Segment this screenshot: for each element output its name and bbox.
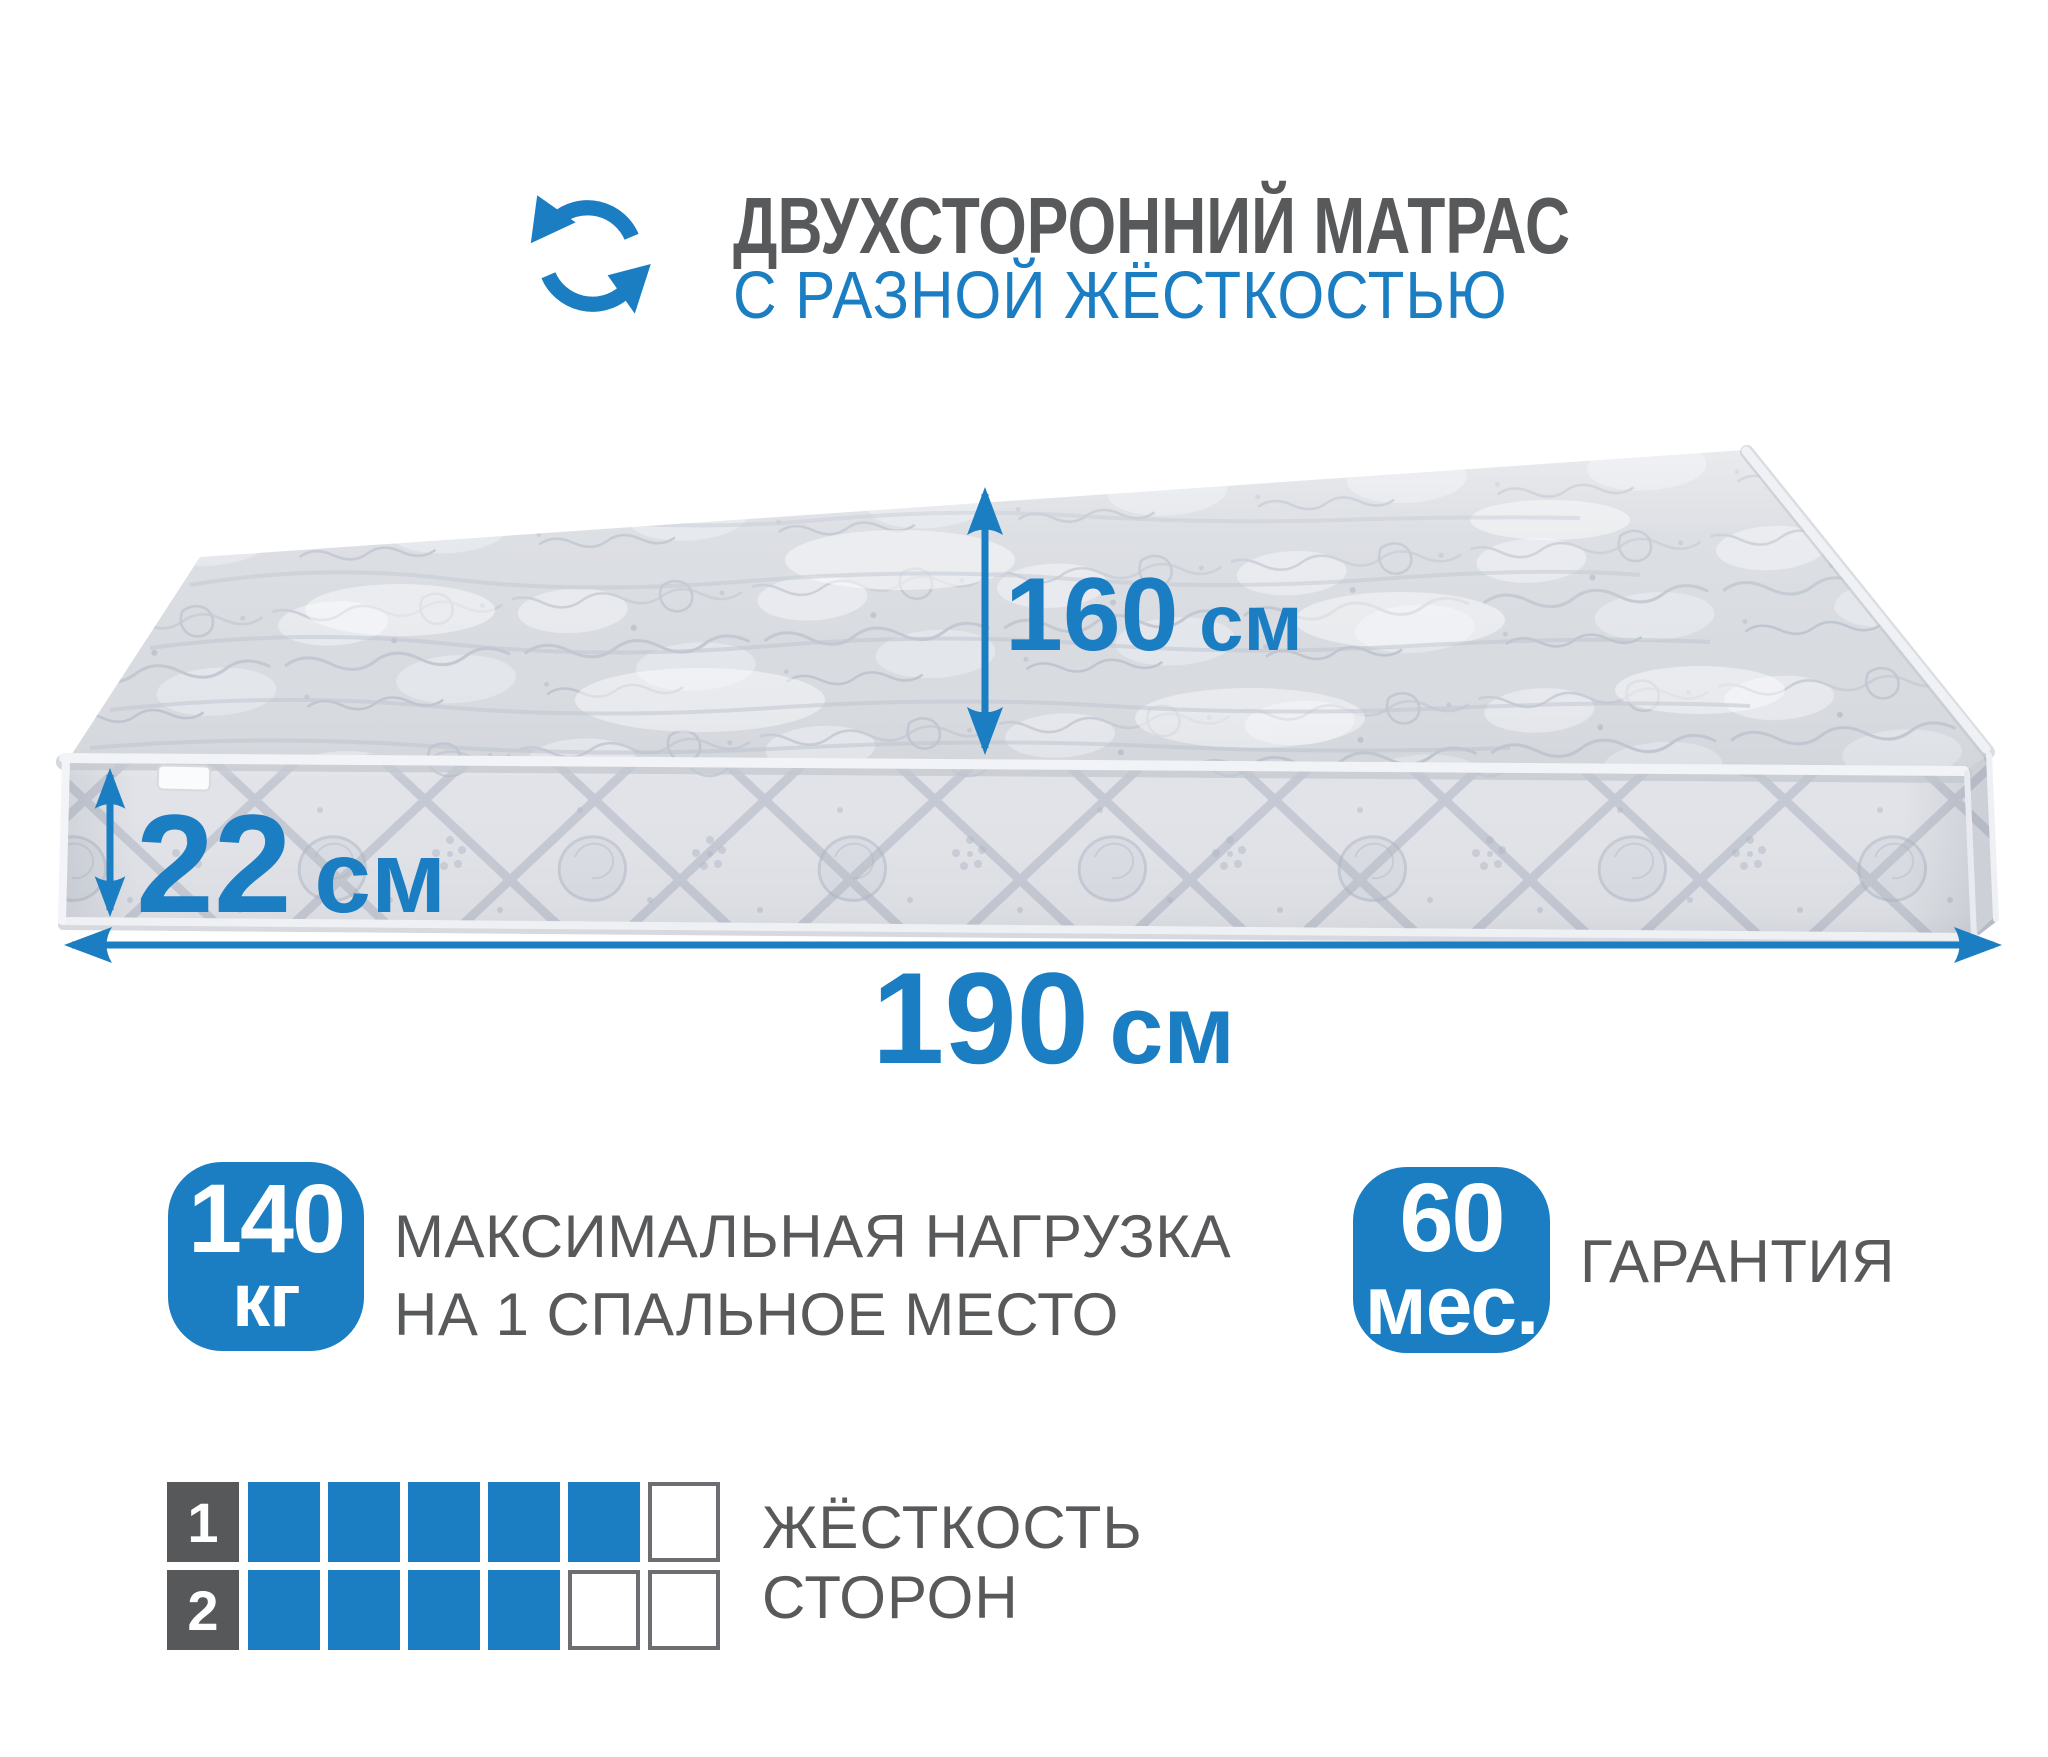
firmness-cell-empty xyxy=(648,1482,720,1562)
firmness-scale: 1 2 xyxy=(167,1482,720,1650)
max-load-value: 140 xyxy=(188,1174,344,1263)
firmness-cell-filled xyxy=(248,1482,320,1562)
max-load-caption-line1: МАКСИМАЛЬНАЯ НАГРУЗКА xyxy=(394,1198,1231,1276)
firmness-cell-filled xyxy=(248,1570,320,1650)
firmness-side-number-2: 2 xyxy=(167,1570,239,1650)
firmness-row-side-1: 1 xyxy=(167,1482,720,1562)
firmness-side-number-1: 1 xyxy=(167,1482,239,1562)
max-load-caption-line2: НА 1 СПАЛЬНОЕ МЕСТО xyxy=(394,1276,1231,1354)
firmness-cells-side-1 xyxy=(248,1482,720,1562)
warranty-badge: 60 мес. xyxy=(1353,1167,1550,1353)
length-label: 190 см xyxy=(872,945,1235,1091)
dimension-length: 190 см xyxy=(64,927,2002,1091)
firmness-cell-filled xyxy=(328,1482,400,1562)
firmness-cell-empty xyxy=(568,1570,640,1650)
firmness-caption-line2: СТОРОН xyxy=(762,1568,1019,1628)
mattress-infographic: { "header": { "icon": "rotate-arrows-ico… xyxy=(0,0,2048,1757)
firmness-cells-side-2 xyxy=(248,1570,720,1650)
firmness-cell-filled xyxy=(328,1570,400,1650)
firmness-cell-filled xyxy=(488,1570,560,1650)
firmness-caption-line1: ЖЁСТКОСТЬ xyxy=(762,1498,1143,1558)
warranty-value: 60 xyxy=(1400,1173,1504,1262)
firmness-cell-filled xyxy=(408,1482,480,1562)
firmness-cell-filled xyxy=(568,1482,640,1562)
max-load-unit: кг xyxy=(232,1263,300,1339)
firmness-row-side-2: 2 xyxy=(167,1570,720,1650)
warranty-caption: ГАРАНТИЯ xyxy=(1580,1232,1895,1292)
firmness-cell-empty xyxy=(648,1570,720,1650)
firmness-cell-filled xyxy=(408,1570,480,1650)
max-load-caption: МАКСИМАЛЬНАЯ НАГРУЗКА НА 1 СПАЛЬНОЕ МЕСТ… xyxy=(394,1198,1231,1354)
length-arrowhead-left xyxy=(64,927,112,963)
max-load-badge: 140 кг xyxy=(168,1162,364,1351)
mattress-illustration xyxy=(0,420,2048,960)
warranty-unit: мес. xyxy=(1365,1263,1539,1347)
firmness-cell-filled xyxy=(488,1482,560,1562)
